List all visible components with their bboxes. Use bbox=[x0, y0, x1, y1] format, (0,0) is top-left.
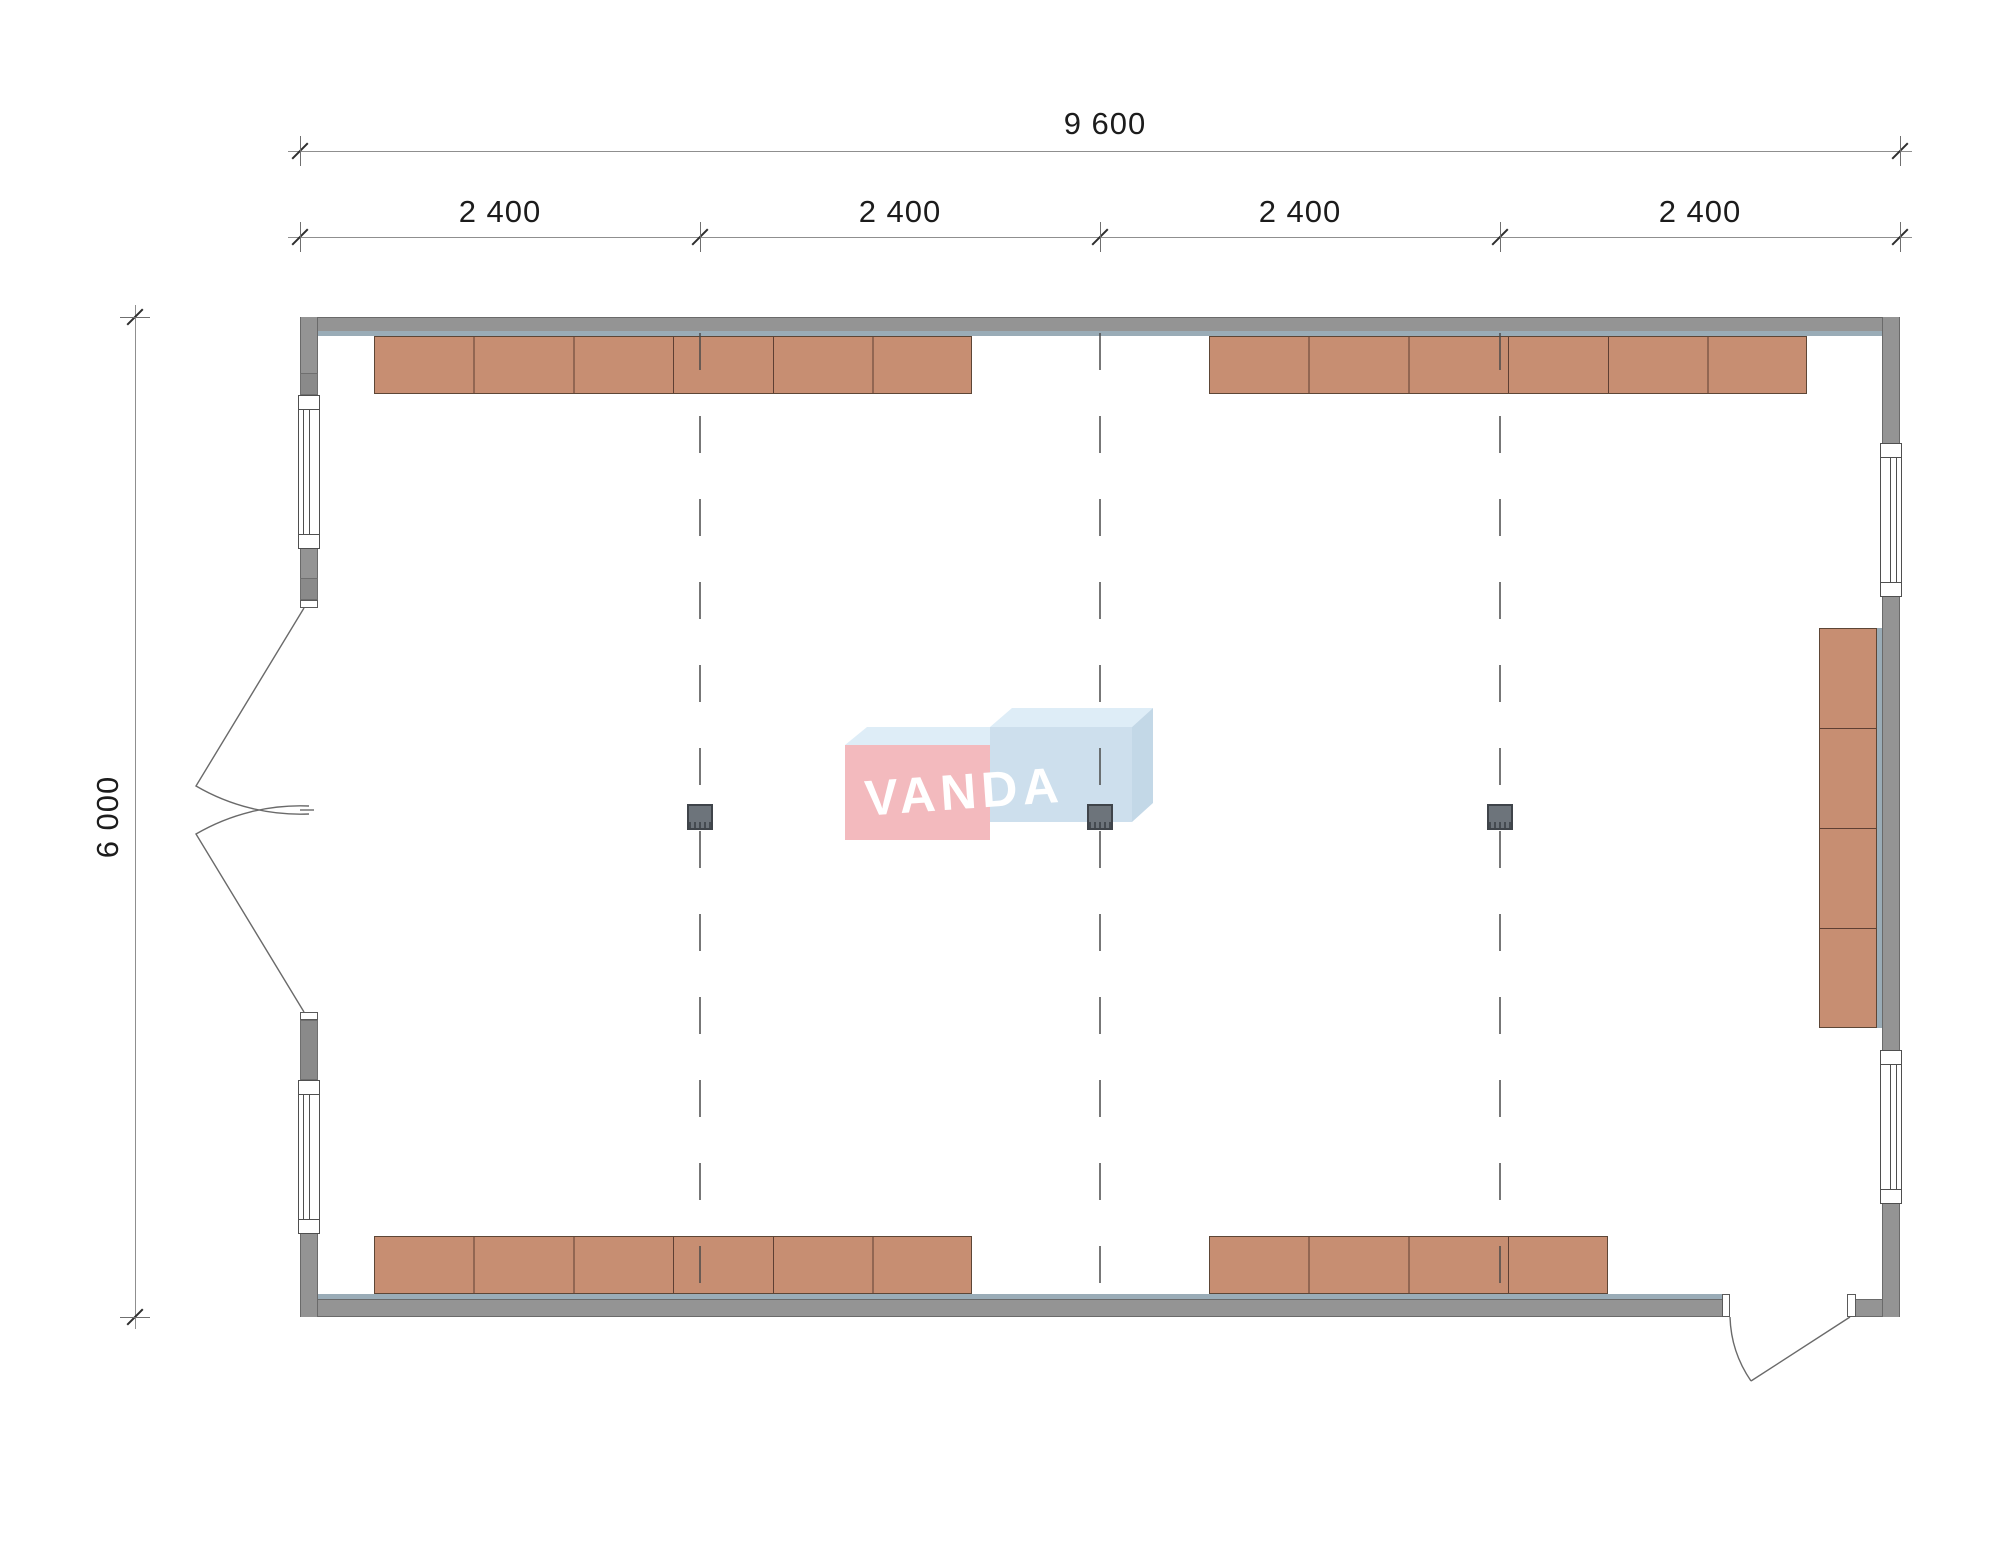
door-leaf-upper bbox=[196, 608, 309, 814]
door-swing-arc bbox=[1730, 1317, 1751, 1381]
column bbox=[687, 804, 713, 830]
column bbox=[1487, 804, 1513, 830]
bottom-single-door bbox=[1730, 1317, 1850, 1381]
floor-plan-canvas: 9 600 2 400 2 400 2 400 2 400 6 000 bbox=[0, 0, 2000, 1550]
door-leaf bbox=[1751, 1317, 1850, 1381]
door-leaf-lower bbox=[196, 806, 309, 1012]
column bbox=[1087, 804, 1113, 830]
left-double-door bbox=[196, 608, 314, 1012]
plan-linework bbox=[0, 0, 2000, 1550]
